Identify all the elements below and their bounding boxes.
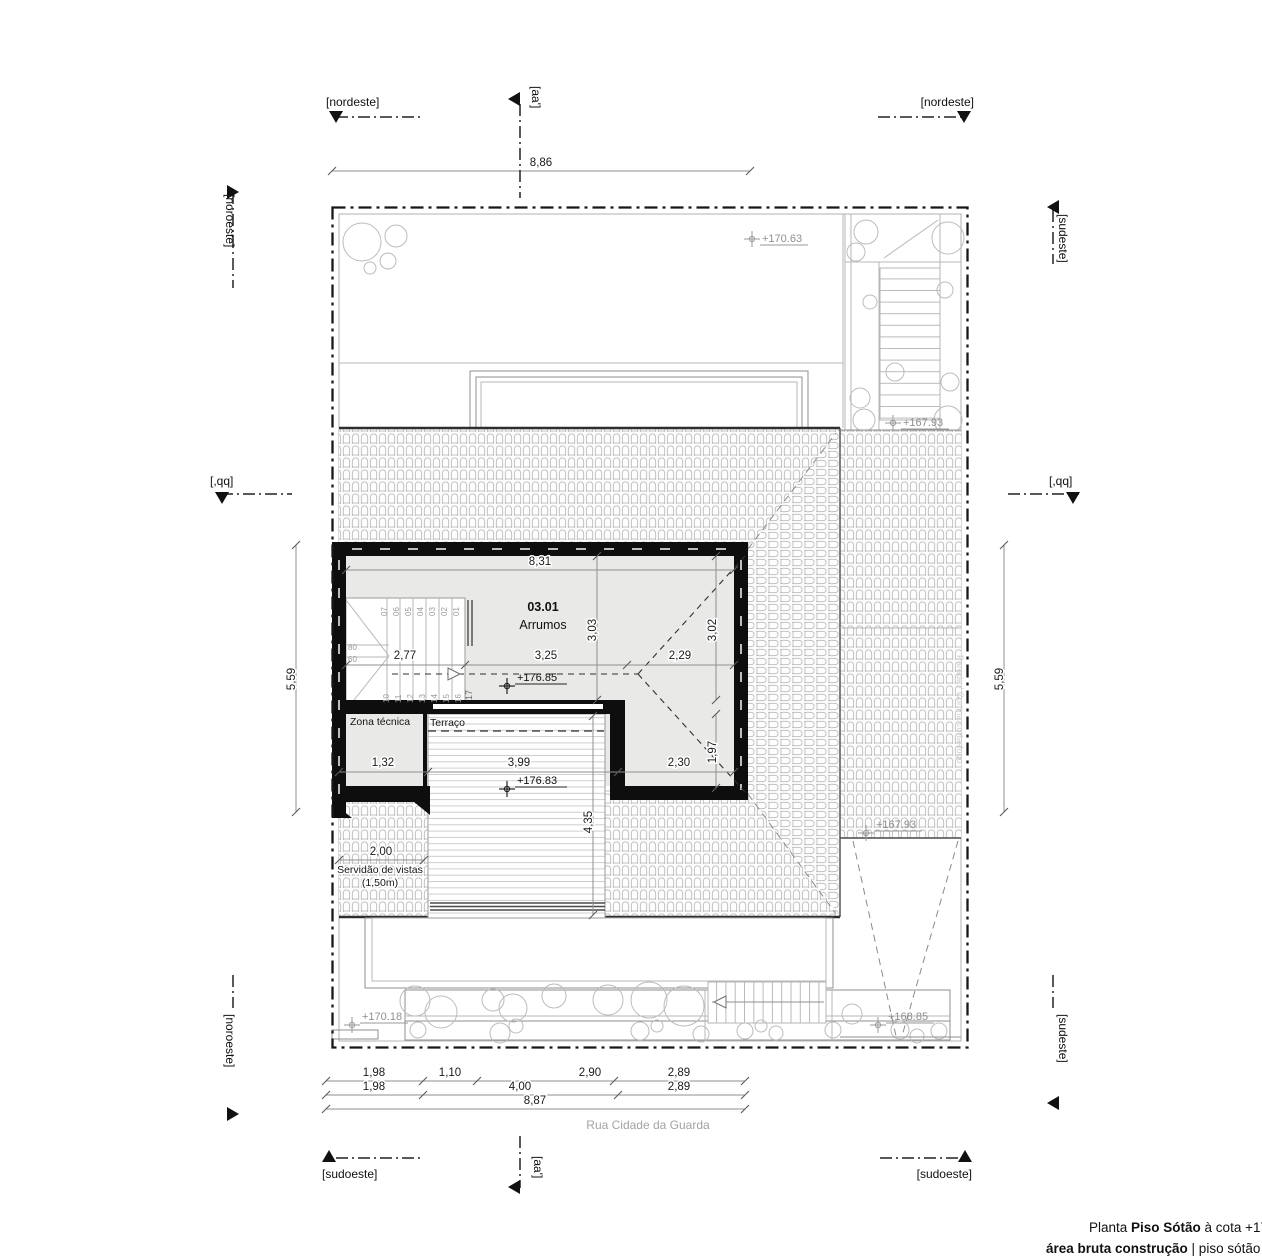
svg-text:4,00: 4,00 xyxy=(509,1081,531,1093)
title-name: Piso Sótão xyxy=(1131,1220,1201,1235)
svg-text:8,31: 8,31 xyxy=(529,556,551,568)
level-terrace: +176.83 xyxy=(517,775,557,787)
exterior-stair-northeast xyxy=(845,214,964,434)
svg-text:80: 80 xyxy=(348,643,357,652)
svg-text:06: 06 xyxy=(392,607,401,616)
svg-text:8,86: 8,86 xyxy=(530,157,552,169)
firewall-label: Parede / Cortina corta-fogo xyxy=(955,655,965,764)
zona-tecnica-label: Zona técnica xyxy=(350,716,410,728)
svg-text:13: 13 xyxy=(418,694,427,703)
svg-text:1,97: 1,97 xyxy=(707,741,719,763)
svg-text:1,98: 1,98 xyxy=(363,1081,385,1093)
svg-text:5,59: 5,59 xyxy=(994,668,1006,690)
title-prefix: Planta xyxy=(1089,1220,1131,1235)
svg-text:2,77: 2,77 xyxy=(394,650,416,662)
svg-text:2,29: 2,29 xyxy=(669,650,691,662)
label-qq-right: [,qq] xyxy=(1049,474,1072,488)
svg-text:3,02: 3,02 xyxy=(707,619,719,641)
label-nordeste-left: [nordeste] xyxy=(326,95,379,109)
label-noroeste-top: [noroeste] xyxy=(223,194,237,247)
svg-text:2,89: 2,89 xyxy=(668,1081,690,1093)
room-name: Arrumos xyxy=(519,618,566,632)
svg-text:3,99: 3,99 xyxy=(508,757,530,769)
svg-text:07: 07 xyxy=(380,607,389,616)
label-sudeste-top: [sudeste] xyxy=(1056,214,1070,263)
svg-text:11: 11 xyxy=(394,694,403,703)
street-stair xyxy=(708,982,826,1023)
svg-text:2,89: 2,89 xyxy=(668,1067,690,1079)
patio-below-outline xyxy=(470,371,808,428)
label-aa-top: [aa'] xyxy=(529,86,543,108)
svg-text:2,00: 2,00 xyxy=(370,846,392,858)
label-qq-left: [,qq] xyxy=(210,474,233,488)
level-garden-ne: +170.63 xyxy=(762,233,802,245)
tree-icon xyxy=(343,223,407,274)
label-sudeste-bottom: [sudeste] xyxy=(1056,1014,1070,1063)
svg-text:12: 12 xyxy=(406,694,415,703)
svg-text:02: 02 xyxy=(440,607,449,616)
room-number: 03.01 xyxy=(527,600,558,614)
plan-drawing: Parede / Cortina corta-fogo xyxy=(0,0,1262,1256)
subtitle-rest: | piso sótão = 03 xyxy=(1188,1241,1262,1256)
svg-text:17: 17 xyxy=(464,690,474,700)
floor-plan-sheet: Parede / Cortina corta-fogo xyxy=(0,0,1262,1256)
label-noroeste-bottom: [noroeste] xyxy=(223,1014,237,1067)
level-garden-sw: +170.18 xyxy=(362,1011,402,1023)
level-drive-se: +168.85 xyxy=(888,1011,928,1023)
svg-text:05: 05 xyxy=(404,607,413,616)
svg-text:03: 03 xyxy=(428,607,437,616)
drawing-subtitle: área bruta construção | piso sótão = 03 xyxy=(1046,1241,1262,1256)
tree-icon xyxy=(400,982,947,1043)
level-attic: +176.85 xyxy=(517,672,557,684)
subtitle-bold: área bruta construção xyxy=(1046,1241,1188,1256)
level-roof-se: +167.93 xyxy=(876,819,916,831)
svg-text:1,10: 1,10 xyxy=(439,1067,461,1079)
svg-text:04: 04 xyxy=(416,607,425,616)
label-sudoeste-left: [sudoeste] xyxy=(322,1167,377,1181)
svg-text:3,25: 3,25 xyxy=(535,650,557,662)
label-nordeste-right: [nordeste] xyxy=(921,95,974,109)
svg-text:1,98: 1,98 xyxy=(363,1067,385,1079)
svg-text:10: 10 xyxy=(382,694,391,703)
svg-text:2,30: 2,30 xyxy=(668,757,690,769)
svg-text:3,03: 3,03 xyxy=(587,619,599,641)
title-suffix: à cota +178 xyxy=(1201,1220,1262,1235)
servidao-label-1: Servidão de vistas xyxy=(337,864,423,876)
svg-text:8,87: 8,87 xyxy=(524,1095,546,1107)
label-sudoeste-right: [sudoeste] xyxy=(917,1167,972,1181)
level-stair-ne: +167.93 xyxy=(903,417,943,429)
svg-text:5,59: 5,59 xyxy=(286,668,298,690)
terrace xyxy=(428,714,605,918)
label-aa-bottom: [aa'] xyxy=(531,1156,545,1178)
svg-text:14: 14 xyxy=(430,694,439,703)
svg-text:16: 16 xyxy=(454,694,463,703)
svg-text:2,90: 2,90 xyxy=(579,1067,601,1079)
drawing-title: Planta Piso Sótão à cota +178 xyxy=(1089,1220,1262,1235)
terraco-label: Terraço xyxy=(430,717,465,729)
svg-text:60: 60 xyxy=(348,655,357,664)
svg-text:1,32: 1,32 xyxy=(372,757,394,769)
svg-text:15: 15 xyxy=(442,694,451,703)
servidao-label-2: (1,50m) xyxy=(362,877,398,889)
street-name: Rua Cidade da Guarda xyxy=(586,1118,710,1132)
svg-text:01: 01 xyxy=(452,607,461,616)
svg-text:4,35: 4,35 xyxy=(583,811,595,833)
